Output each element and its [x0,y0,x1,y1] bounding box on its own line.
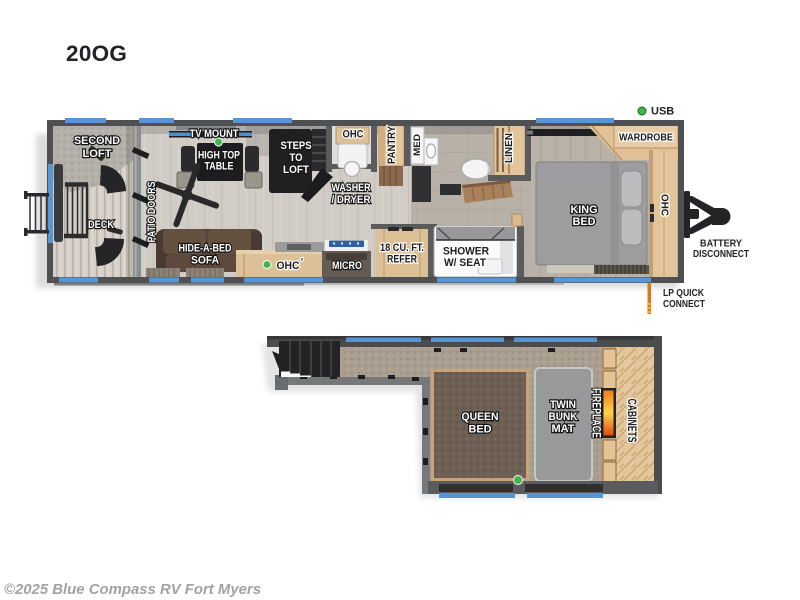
svg-text:STEPS: STEPS [281,140,312,152]
svg-text:LOFT: LOFT [283,164,309,176]
svg-text:HIDE-A-BED: HIDE-A-BED [179,243,232,255]
svg-text:20OG: 20OG [66,41,127,66]
svg-text:/ DRYER: / DRYER [332,194,371,206]
svg-text:LOFT: LOFT [83,148,112,160]
svg-text:OHC: OHC [343,129,364,141]
svg-text:W/ SEAT: W/ SEAT [444,257,486,269]
svg-text:TWIN: TWIN [550,399,576,411]
svg-text:OHC: OHC [659,194,670,216]
svg-text:WASHER: WASHER [332,182,371,194]
svg-text:18 CU. FT.: 18 CU. FT. [380,242,424,254]
svg-text:©2025 Blue Compass RV Fort Mye: ©2025 Blue Compass RV Fort Myers [4,582,261,598]
svg-text:BED: BED [469,424,492,436]
svg-text:QUEEN: QUEEN [462,411,499,423]
svg-text:MED: MED [412,134,423,156]
svg-text:CABINETS: CABINETS [625,399,639,443]
svg-text:SHOWER: SHOWER [443,246,489,258]
svg-text:BUNK: BUNK [549,411,578,423]
svg-text:LINEN: LINEN [504,133,515,163]
svg-text:°: ° [301,258,304,266]
svg-text:USB: USB [651,106,674,118]
svg-text:PATIO DOORS: PATIO DOORS [146,181,158,242]
svg-text:MAT: MAT [552,423,575,435]
svg-text:TV MOUNT: TV MOUNT [190,128,239,140]
svg-text:BED: BED [573,216,596,228]
svg-text:TO: TO [290,152,303,164]
svg-text:DECK: DECK [88,219,114,231]
svg-text:FIREPLACE: FIREPLACE [590,388,604,438]
svg-text:TABLE: TABLE [205,161,234,173]
svg-text:DISCONNECT: DISCONNECT [693,248,749,260]
svg-text:MICRO: MICRO [332,260,362,272]
svg-text:CONNECT: CONNECT [663,298,705,310]
svg-text:KING: KING [571,204,598,216]
svg-text:SOFA: SOFA [191,255,219,267]
svg-text:PANTRY: PANTRY [386,126,398,164]
svg-text:SECOND: SECOND [74,135,120,147]
svg-text:OHC: OHC [277,260,300,272]
svg-text:WARDROBE: WARDROBE [619,133,673,144]
svg-text:REFER: REFER [387,254,417,266]
